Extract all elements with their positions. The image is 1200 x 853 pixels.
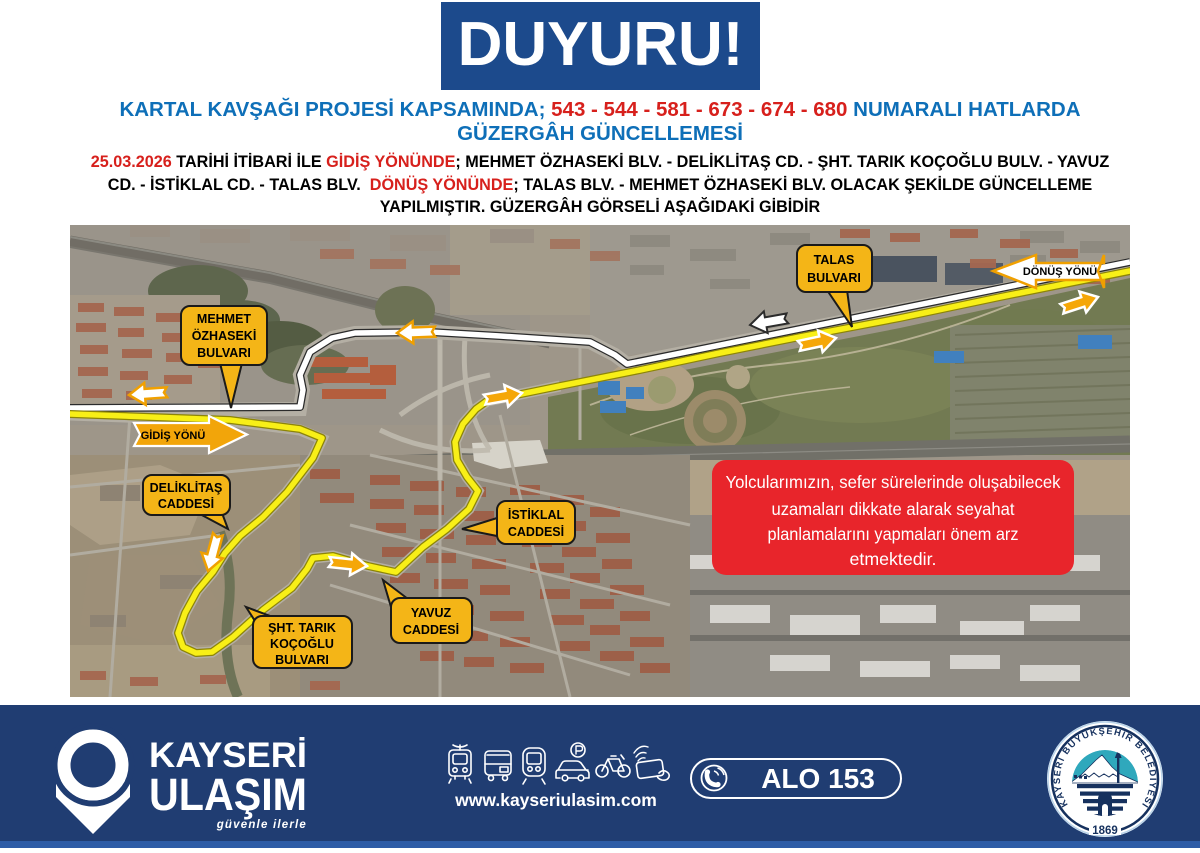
svg-text:CADDESİ: CADDESİ — [403, 622, 459, 637]
svg-text:güvenle ilerle: güvenle ilerle — [216, 819, 307, 831]
svg-text:planlamalarını yapmaları önem: planlamalarını yapmaları önem arz — [768, 524, 1019, 544]
svg-text:İSTİKLAL: İSTİKLAL — [508, 507, 565, 522]
svg-text:Yolcularımızın, sefer süreleri: Yolcularımızın, sefer sürelerinde oluşab… — [726, 472, 1061, 492]
svg-text:ULAŞIM: ULAŞIM — [149, 769, 307, 820]
svg-text:CADDESİ: CADDESİ — [158, 496, 214, 511]
svg-text:ALO 153: ALO 153 — [761, 763, 875, 794]
svg-text:www.kayseriulasim.com: www.kayseriulasim.com — [454, 790, 657, 810]
svg-text:TALAS: TALAS — [814, 253, 855, 267]
svg-text:GİDİŞ YÖNÜ: GİDİŞ YÖNÜ — [141, 429, 206, 442]
svg-text:etmektedir.: etmektedir. — [850, 549, 937, 569]
svg-text:MEHMET: MEHMET — [197, 312, 252, 326]
svg-text:ÖZHASEKİ: ÖZHASEKİ — [192, 328, 257, 343]
svg-text:BULVARI: BULVARI — [197, 346, 251, 360]
svg-text:ŞHT. TARIK: ŞHT. TARIK — [268, 621, 336, 635]
svg-text:uzamaları dikkate alarak seyah: uzamaları dikkate alarak seyahat — [772, 499, 1015, 519]
svg-text:CADDESİ: CADDESİ — [508, 524, 564, 539]
svg-text:BULVARI: BULVARI — [807, 271, 861, 285]
svg-text:BULVARI: BULVARI — [275, 653, 329, 667]
svg-text:YAVUZ: YAVUZ — [411, 606, 452, 620]
svg-text:DÖNÜŞ YÖNÜ: DÖNÜŞ YÖNÜ — [1023, 265, 1097, 278]
svg-text:DELİKLİTAŞ: DELİKLİTAŞ — [150, 480, 223, 495]
svg-text:KOÇOĞLU: KOÇOĞLU — [270, 636, 334, 651]
svg-text:1869: 1869 — [1092, 825, 1118, 837]
